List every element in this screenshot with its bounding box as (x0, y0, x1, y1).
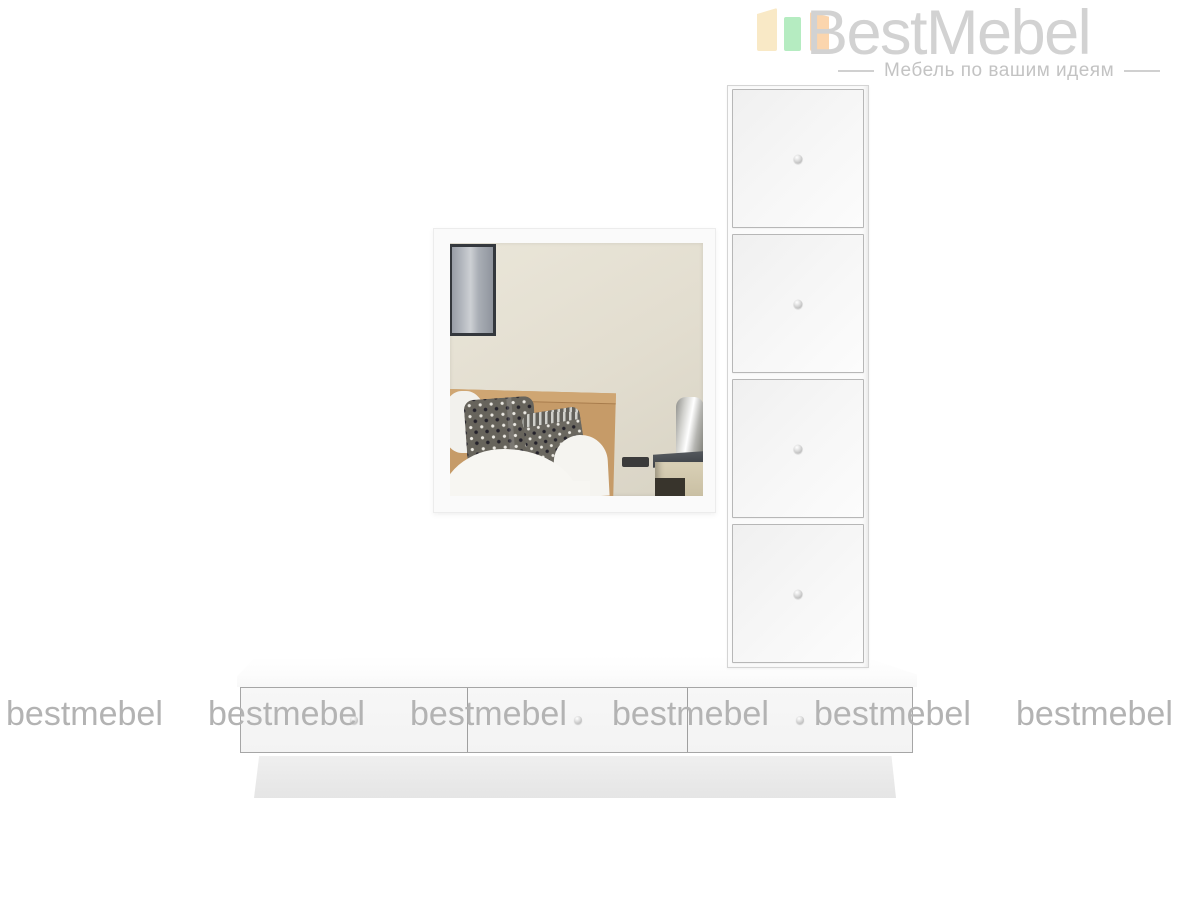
door-knob (794, 154, 803, 163)
tagline-rule-left (838, 70, 874, 72)
reflected-lamp (676, 397, 703, 459)
reflected-nightstand-opening (655, 478, 685, 496)
brand-name: BestMebel (806, 2, 1090, 65)
mirror-reflection (450, 243, 703, 496)
drawer-knob (574, 716, 582, 724)
door-knob (794, 444, 803, 453)
logo-bar-middle-icon (784, 17, 801, 51)
dresser-plinth (254, 756, 896, 798)
reflected-bed-base (450, 481, 590, 496)
drawer-knob (796, 716, 804, 724)
cabinet-column (727, 85, 869, 668)
cabinet-door-4 (732, 524, 864, 663)
cabinet-door-3 (732, 379, 864, 518)
watermark-text: bestmebel (612, 697, 769, 731)
product-image: BestMebel Мебель по вашим идеям (0, 0, 1200, 900)
reflected-wall-outlet (622, 457, 649, 467)
door-knob (794, 589, 803, 598)
tagline-rule-right (1124, 70, 1160, 72)
watermark-text: bestmebel (6, 697, 163, 731)
cabinet-door-2 (732, 234, 864, 373)
cabinet-door-1 (732, 89, 864, 228)
brand-logo: BestMebel Мебель по вашим идеям (740, 0, 1160, 90)
door-knob (794, 299, 803, 308)
logo-bar-left-icon (757, 8, 777, 51)
watermark-text: bestmebel (814, 697, 971, 731)
watermark-text: bestmebel (1016, 697, 1173, 731)
mirror-frame (433, 228, 716, 513)
reflected-wall-art (450, 244, 496, 336)
brand-tagline-row: Мебель по вашим идеям (838, 60, 1160, 82)
watermark-text: bestmebel (208, 697, 365, 731)
brand-tagline: Мебель по вашим идеям (884, 60, 1114, 82)
watermark-text: bestmebel (410, 697, 567, 731)
